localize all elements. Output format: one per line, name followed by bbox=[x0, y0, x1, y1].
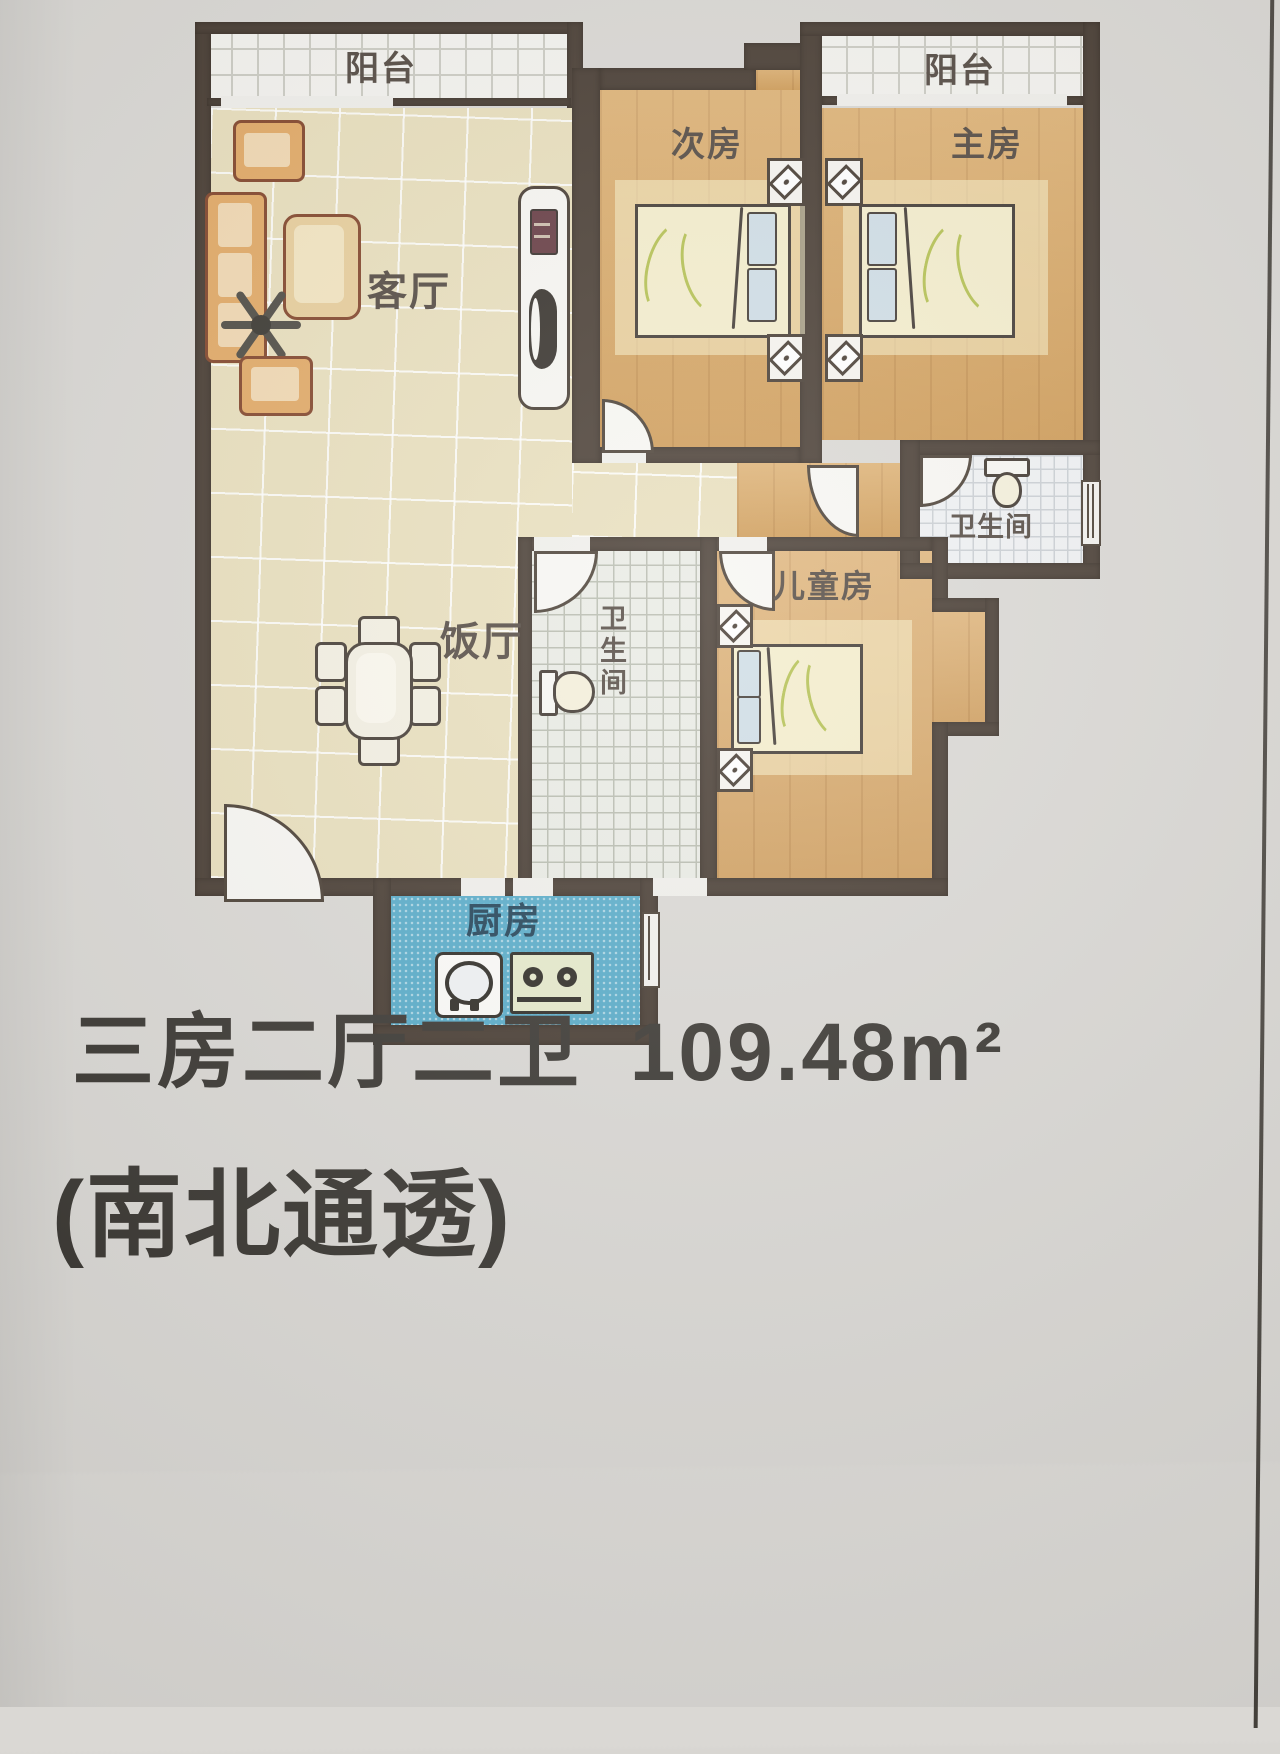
nightstand-icon bbox=[767, 334, 805, 382]
pillow-icon bbox=[737, 650, 761, 698]
hallway-floor bbox=[572, 463, 742, 537]
stove-icon bbox=[510, 952, 594, 1014]
pillow-icon bbox=[737, 696, 761, 744]
kitchen-window-icon bbox=[642, 912, 660, 988]
room-label-bathroom-right: 卫生间 bbox=[949, 514, 1033, 541]
photo-bottom-band bbox=[0, 1462, 1280, 1754]
nightstand-icon bbox=[717, 748, 753, 792]
armchair-icon bbox=[239, 356, 313, 416]
wall-segment bbox=[700, 537, 717, 896]
toilet-icon bbox=[984, 458, 1028, 508]
wall-segment bbox=[900, 563, 1100, 579]
dining-chair-icon bbox=[315, 686, 347, 726]
caption-line1: 三房二厅二卫 109.48m² bbox=[72, 1012, 1005, 1094]
wall-segment bbox=[900, 440, 920, 579]
balcony-door-opening bbox=[221, 96, 393, 108]
wall-segment bbox=[985, 598, 999, 736]
room-label-master-bedroom: 主房 bbox=[951, 128, 1023, 162]
window-opening bbox=[653, 878, 707, 896]
speaker-icon bbox=[530, 209, 558, 255]
pillow-icon bbox=[867, 268, 897, 322]
photo-of-floorplan-page: { "floorplan": { "rooms": { "balcony_lef… bbox=[0, 0, 1280, 1707]
nightstand-icon bbox=[825, 158, 863, 206]
room-label-balcony-left: 阳台 bbox=[321, 52, 441, 86]
wall-segment bbox=[600, 68, 756, 90]
plant-icon bbox=[217, 288, 305, 362]
wall-segment bbox=[572, 68, 600, 463]
wall-segment bbox=[195, 22, 583, 34]
room-label-second-bedroom: 次房 bbox=[671, 128, 743, 162]
wall-segment bbox=[800, 22, 1098, 36]
toilet-icon bbox=[539, 668, 595, 714]
pillow-icon bbox=[747, 212, 777, 266]
nightstand-icon bbox=[825, 334, 863, 382]
dining-table-icon bbox=[345, 642, 413, 740]
floor-plan: 阳台 阳台 客厅 次房 主房 卫生间 饭厅 卫生间 儿童房 厨房 bbox=[195, 22, 1100, 1067]
wall-segment bbox=[744, 43, 804, 70]
door-opening bbox=[719, 537, 767, 551]
armchair-icon bbox=[233, 120, 305, 182]
wall-segment bbox=[518, 537, 532, 896]
dining-chair-icon bbox=[409, 686, 441, 726]
wall-segment bbox=[900, 440, 1100, 455]
room-label-bathroom-center: 卫生间 bbox=[597, 604, 624, 700]
balcony-door-opening bbox=[837, 94, 1067, 106]
room-label-dining: 饭厅 bbox=[440, 622, 524, 662]
nightstand-icon bbox=[717, 604, 753, 648]
window-opening bbox=[461, 878, 505, 896]
room-label-kitchen: 厨房 bbox=[466, 903, 542, 939]
wall-segment bbox=[195, 22, 211, 896]
room-label-living: 客厅 bbox=[367, 272, 451, 312]
room-label-kids-room: 儿童房 bbox=[773, 570, 875, 602]
wall-segment bbox=[932, 722, 948, 896]
nightstand-icon bbox=[767, 158, 805, 206]
tv-icon bbox=[529, 289, 557, 369]
window-opening bbox=[513, 878, 553, 896]
door-opening bbox=[534, 537, 590, 551]
room-label-balcony-right: 阳台 bbox=[900, 54, 1020, 88]
kids-room-bay-floor bbox=[932, 612, 985, 722]
dining-chair-icon bbox=[409, 642, 441, 682]
dining-chair-icon bbox=[315, 642, 347, 682]
bathroom-right-window-icon bbox=[1081, 480, 1101, 546]
pillow-icon bbox=[747, 268, 777, 322]
caption-line2: (南北通透) bbox=[52, 1168, 512, 1264]
pillow-icon bbox=[867, 212, 897, 266]
tv-cabinet-icon bbox=[518, 186, 570, 410]
